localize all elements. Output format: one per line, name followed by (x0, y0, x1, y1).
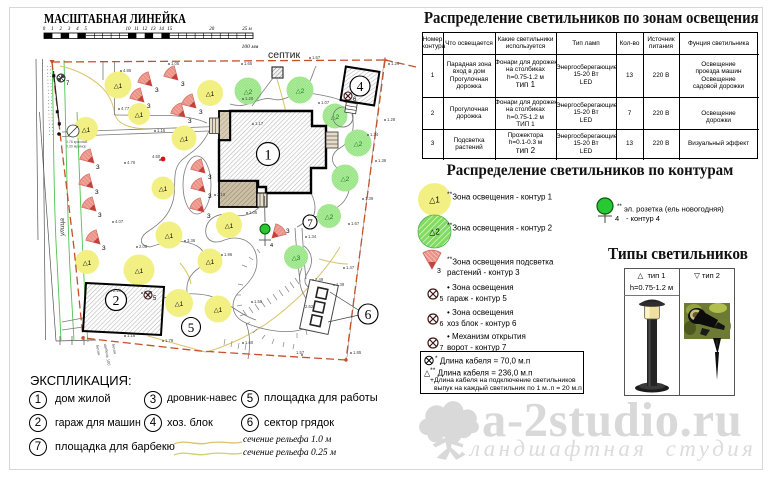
svg-text:△1: △1 (82, 127, 91, 134)
svg-text:2: 2 (59, 27, 62, 32)
svg-text:2.10: 2.10 (217, 192, 226, 197)
svg-text:3: 3 (96, 164, 100, 171)
svg-text:5: 5 (188, 320, 195, 335)
svg-text:△2: △2 (341, 176, 350, 183)
svg-text:△1: △1 (165, 233, 174, 240)
svg-text:20: 20 (209, 27, 215, 32)
svg-text:12: 12 (142, 27, 148, 32)
svg-text:4.07: 4.07 (115, 219, 124, 224)
svg-text:3: 3 (181, 81, 185, 88)
svg-text:1.17: 1.17 (255, 121, 264, 126)
svg-text:7: 7 (307, 218, 313, 230)
svg-text:△1: △1 (225, 223, 234, 230)
svg-text:4: 4 (76, 27, 79, 32)
svg-text:△1: △1 (214, 307, 223, 314)
svg-text:4.60: 4.60 (152, 154, 161, 159)
svg-text:15: 15 (167, 27, 173, 32)
svg-text:1.34: 1.34 (308, 234, 317, 239)
svg-text:3: 3 (208, 174, 212, 181)
svg-text:14: 14 (159, 27, 165, 32)
svg-text:1.34: 1.34 (370, 132, 379, 137)
svg-text:1.96: 1.96 (224, 252, 233, 257)
svg-text:1.65: 1.65 (244, 61, 253, 66)
svg-text:1.05: 1.05 (249, 210, 258, 215)
svg-text:1.47: 1.47 (346, 265, 355, 270)
svg-text:3.20: 3.20 (144, 290, 153, 295)
svg-text:100 мм: 100 мм (242, 44, 259, 50)
svg-text:4: 4 (615, 214, 619, 223)
svg-text:2: 2 (113, 293, 120, 308)
svg-text:2.62: 2.62 (305, 304, 314, 309)
svg-text:1.18: 1.18 (127, 333, 136, 338)
svg-text:1.67: 1.67 (312, 55, 321, 60)
svg-text:1.60: 1.60 (245, 340, 254, 345)
svg-text:4: 4 (357, 79, 364, 94)
svg-text:13: 13 (151, 27, 157, 32)
svg-text:3: 3 (155, 87, 159, 94)
svg-text:2.06: 2.06 (139, 244, 148, 249)
svg-text:△1: △1 (114, 83, 123, 90)
svg-text:септик: септик (268, 49, 300, 61)
svg-text:△2: △2 (354, 141, 363, 148)
svg-text:11: 11 (134, 27, 139, 32)
svg-text:7: 7 (66, 81, 70, 87)
svg-text:△2: △2 (325, 214, 334, 221)
svg-text:△1: △1 (175, 301, 184, 308)
svg-text:3.36: 3.36 (187, 238, 196, 243)
svg-text:3: 3 (208, 193, 212, 200)
svg-text:МАСШТАБНАЯ ЛИНЕЙКА: МАСШТАБНАЯ ЛИНЕЙКА (44, 11, 186, 26)
svg-text:1: 1 (51, 27, 54, 32)
svg-text:1.28: 1.28 (387, 117, 396, 122)
svg-text:1.15: 1.15 (157, 128, 166, 133)
svg-text:3: 3 (95, 189, 99, 196)
svg-text:3: 3 (207, 213, 211, 220)
svg-text:4.76: 4.76 (127, 160, 136, 165)
svg-text:0.30 мрамор: 0.30 мрамор (66, 145, 86, 149)
svg-text:1.55: 1.55 (254, 299, 263, 304)
svg-text:3: 3 (98, 212, 102, 219)
svg-text:1.85: 1.85 (353, 350, 362, 355)
svg-text:бетон: бетон (111, 343, 118, 354)
svg-text:1.67: 1.67 (351, 221, 360, 226)
svg-text:△1: △1 (159, 186, 168, 193)
svg-text:1.36: 1.36 (378, 158, 387, 163)
svg-text:2.49: 2.49 (315, 277, 324, 282)
svg-text:△2: △2 (296, 88, 305, 95)
svg-text:0.76 красный: 0.76 красный (66, 140, 87, 144)
svg-text:1.39: 1.39 (365, 196, 374, 201)
svg-text:3: 3 (147, 103, 151, 110)
svg-text:1.05: 1.05 (171, 61, 180, 66)
svg-text:△1: △1 (180, 136, 189, 143)
svg-text:улица: улица (59, 218, 66, 237)
svg-text:щебень 100: щебень 100 (103, 343, 112, 366)
svg-text:6: 6 (365, 307, 372, 322)
svg-text:25 м: 25 м (242, 27, 252, 32)
svg-text:4.95: 4.95 (123, 68, 132, 73)
svg-text:1.07: 1.07 (321, 100, 330, 105)
svg-text:3: 3 (102, 245, 106, 252)
svg-text:2.19: 2.19 (113, 288, 122, 293)
svg-text:0: 0 (43, 27, 46, 32)
svg-text:10: 10 (126, 27, 132, 32)
svg-text:△1: △1 (135, 112, 144, 119)
svg-text:△1: △1 (206, 259, 215, 266)
svg-text:3: 3 (68, 27, 71, 32)
svg-text:3: 3 (188, 118, 192, 125)
svg-text:4.77: 4.77 (121, 106, 130, 111)
svg-text:△3: △3 (292, 255, 301, 262)
svg-text:△1: △1 (83, 260, 92, 267)
svg-text:1.57: 1.57 (296, 350, 305, 355)
svg-text:△2: △2 (331, 114, 340, 121)
svg-text:△2: △2 (244, 89, 253, 96)
svg-text:1.24: 1.24 (391, 61, 400, 66)
svg-text:4: 4 (270, 243, 273, 249)
svg-text:3: 3 (286, 228, 290, 235)
svg-text:бетон: бетон (95, 344, 102, 355)
svg-text:△1: △1 (135, 268, 144, 275)
svg-text:1: 1 (264, 148, 272, 164)
svg-text:1.20: 1.20 (245, 96, 254, 101)
svg-text:1.78: 1.78 (165, 338, 174, 343)
svg-text:5: 5 (85, 27, 88, 32)
svg-text:1.39: 1.39 (336, 282, 345, 287)
svg-text:3: 3 (199, 109, 203, 116)
svg-text:△1: △1 (206, 91, 215, 98)
